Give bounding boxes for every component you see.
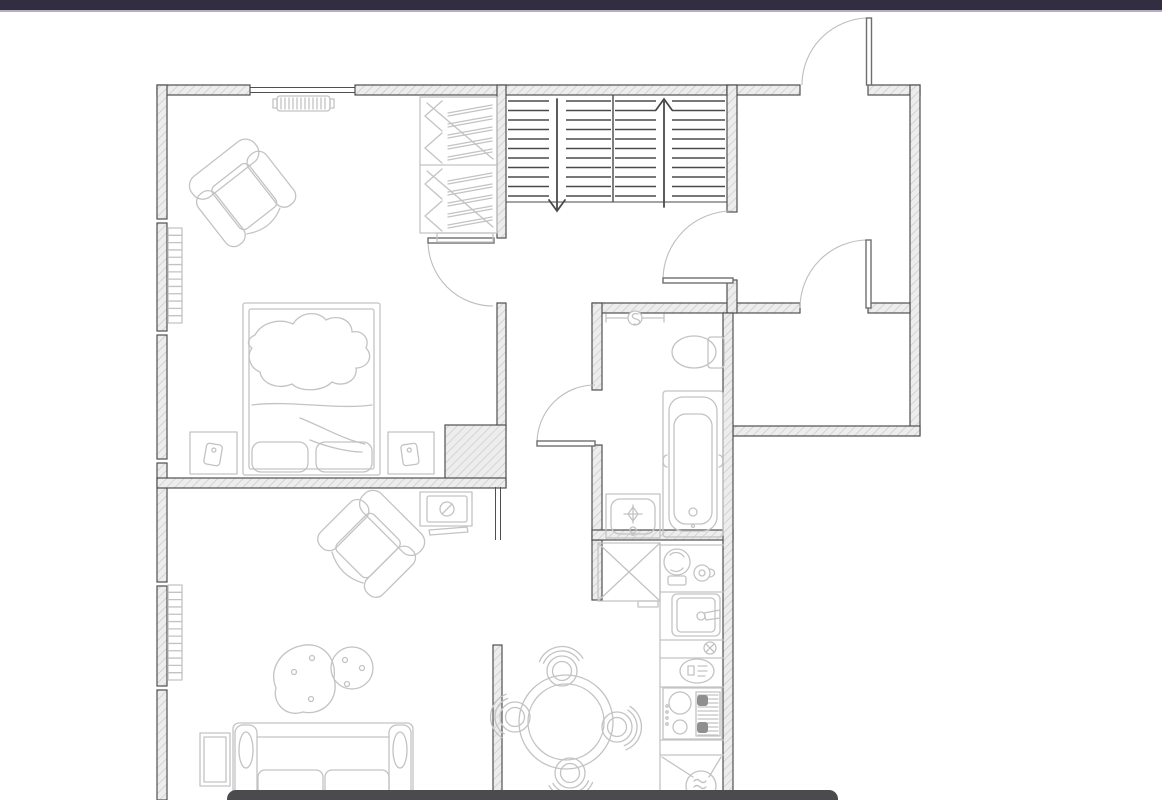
stove [663,688,722,739]
vent-slats [281,98,325,109]
coffee-machine [664,549,690,585]
kitchen [598,543,723,800]
bottom-panel[interactable] [227,790,838,800]
floor-plan-svg [0,0,1162,800]
corner-cabinet [598,543,660,607]
pillow [316,442,372,472]
stair-arrow-down [549,99,565,211]
double-bed [243,303,380,475]
wardrobe-hangers [425,101,493,231]
bathroom [606,311,724,538]
nightstand-2 [388,432,434,474]
dining-chairs [491,647,642,798]
toilet [672,336,724,368]
hall-to-entry-door [663,211,733,283]
tv-stand [420,492,472,535]
entry-door [802,18,872,85]
storage-room-door [800,240,871,308]
cup [694,565,715,581]
sofa [233,723,413,800]
bedroom [168,96,497,475]
dining-set [491,647,642,798]
staircase [506,95,727,211]
cutlery-tray [680,659,714,683]
wardrobe [420,97,497,242]
blanket [248,314,369,390]
valve [704,642,716,654]
radiator-1 [168,228,182,323]
screenshot-stage [0,0,1162,800]
living-room [168,483,472,800]
bedroom-door [428,238,494,306]
kitchen-sink [672,594,720,636]
bedroom-armchair [181,133,300,252]
bathtub [663,391,723,537]
pillow [252,442,308,472]
side-table [200,733,230,786]
living-armchair [312,483,432,603]
stair-treads [508,101,725,196]
stair-arrow-up [656,99,672,207]
bathroom-door [537,385,595,446]
nightstand-1 [190,432,237,474]
coffee-tables [274,645,373,713]
dining-table [519,675,613,769]
vent [273,96,334,111]
radiator-2 [168,585,182,680]
